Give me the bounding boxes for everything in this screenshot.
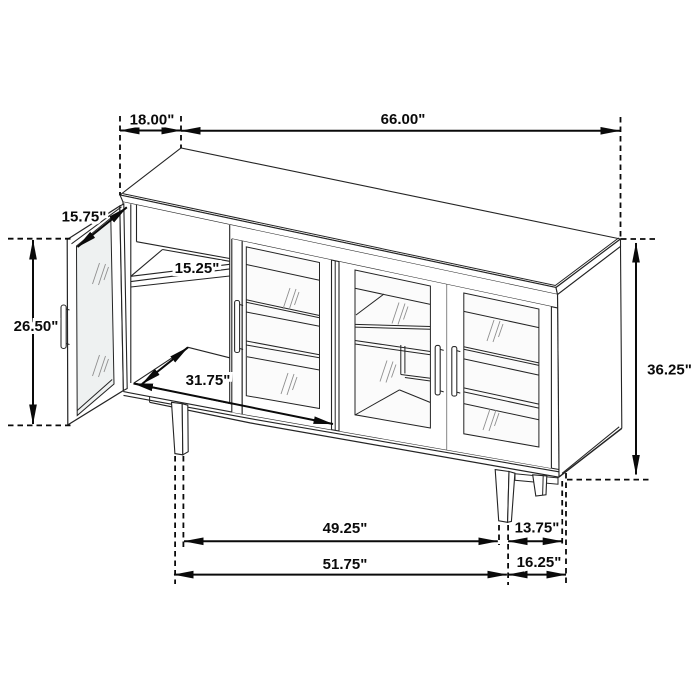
svg-text:15.25": 15.25" [175, 260, 220, 277]
svg-text:13.75": 13.75" [515, 520, 560, 537]
svg-text:51.75": 51.75" [323, 556, 368, 573]
svg-text:16.25": 16.25" [517, 554, 562, 571]
svg-text:18.00": 18.00" [130, 112, 175, 129]
svg-text:49.25": 49.25" [323, 520, 368, 537]
svg-text:15.75": 15.75" [62, 209, 107, 226]
svg-text:66.00": 66.00" [381, 111, 426, 128]
svg-text:31.75": 31.75" [186, 372, 231, 389]
svg-text:26.50": 26.50" [14, 318, 59, 335]
svg-text:36.25": 36.25" [647, 362, 692, 379]
